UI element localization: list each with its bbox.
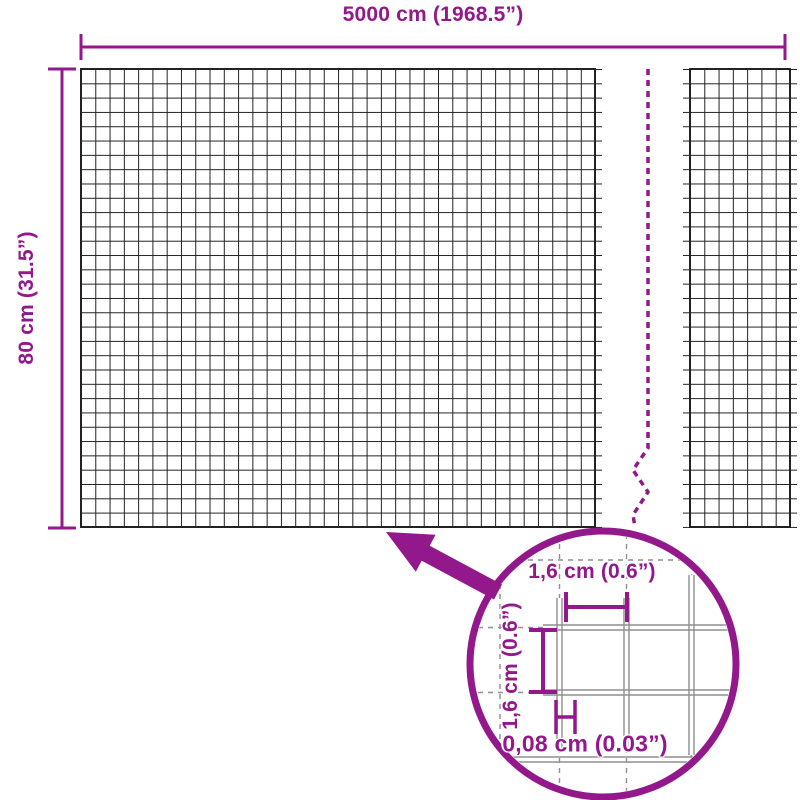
height-dimension-label: 80 cm (31.5”) <box>15 231 39 364</box>
detail-cell-height-label: 1,6 cm (0.6”) <box>499 602 523 730</box>
mesh-panel-right <box>690 69 790 527</box>
height-dimension-line <box>48 69 76 528</box>
mesh-panel-left-wire-stubs <box>595 68 602 528</box>
product-dimension-diagram: 5000 cm (1968.5”) 80 cm (31.5”) 1,6 cm (… <box>0 0 800 800</box>
magnifier-arrow-icon <box>386 532 502 600</box>
mesh-panel-right-wire-stubs-left <box>683 68 690 528</box>
diagram-graphics <box>0 0 800 800</box>
mesh-panel-left <box>81 69 595 527</box>
break-line <box>633 69 648 527</box>
width-dimension-line <box>81 34 785 60</box>
width-dimension-label: 5000 cm (1968.5”) <box>343 3 524 27</box>
detail-cell-width-label: 1,6 cm (0.6”) <box>528 560 656 584</box>
detail-wire-thickness-label: 0,08 cm (0.03”) <box>502 731 667 758</box>
mesh-panel-right-wire-stubs-right <box>790 68 797 528</box>
